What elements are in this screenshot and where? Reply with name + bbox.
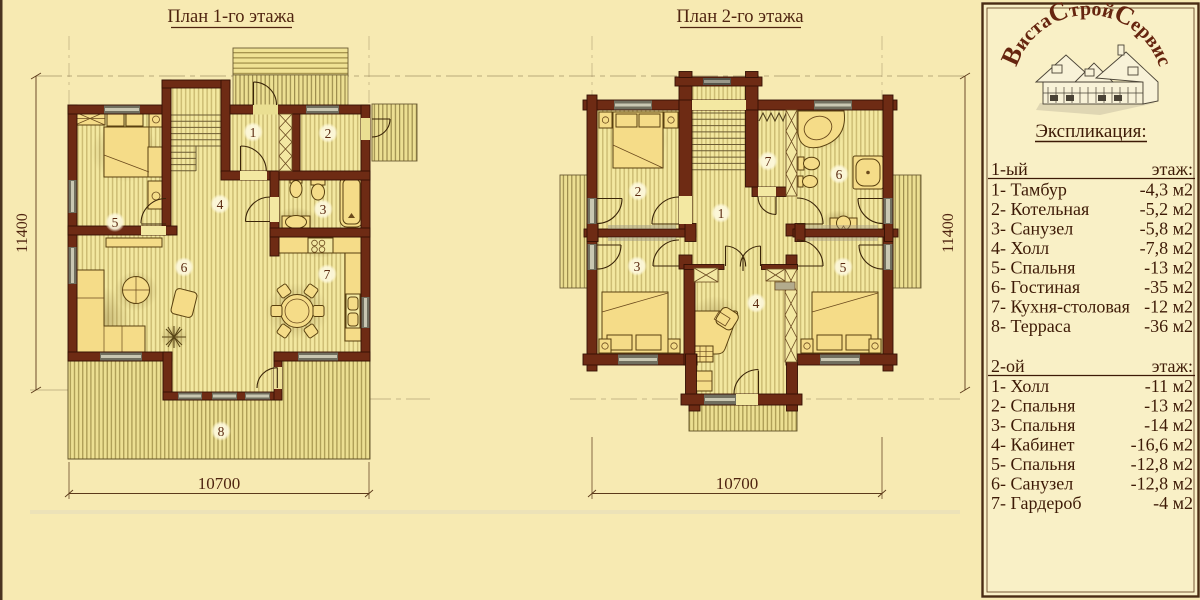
svg-text:5- Спальня: 5- Спальня — [991, 258, 1075, 278]
svg-text:2- Спальня: 2- Спальня — [991, 396, 1075, 416]
svg-text:6: 6 — [836, 167, 843, 182]
svg-text:-12 м2: -12 м2 — [1144, 297, 1193, 317]
svg-text:8- Терраса: 8- Терраса — [991, 316, 1071, 336]
svg-text:3: 3 — [634, 259, 641, 274]
svg-text:План 2-го этажа: План 2-го этажа — [676, 7, 803, 27]
svg-text:4: 4 — [753, 296, 760, 311]
svg-text:2: 2 — [325, 126, 332, 141]
svg-text:-12,8 м2: -12,8 м2 — [1131, 454, 1193, 474]
svg-text:1: 1 — [250, 125, 257, 140]
svg-text:7- Кухня-столовая: 7- Кухня-столовая — [991, 297, 1130, 317]
svg-text:3- Спальня: 3- Спальня — [991, 415, 1075, 435]
svg-text:-36 м2: -36 м2 — [1144, 316, 1193, 336]
svg-text:1: 1 — [718, 206, 725, 221]
svg-text:этаж:: этаж: — [1152, 356, 1193, 376]
svg-text:5- Спальня: 5- Спальня — [991, 454, 1075, 474]
svg-text:этаж:: этаж: — [1152, 159, 1193, 179]
svg-text:8: 8 — [218, 424, 225, 439]
svg-text:1- Холл: 1- Холл — [991, 376, 1049, 396]
svg-text:2-ой: 2-ой — [991, 356, 1025, 376]
svg-text:Экспликация:: Экспликация: — [1035, 121, 1146, 142]
svg-text:10700: 10700 — [198, 474, 241, 493]
svg-text:11400: 11400 — [940, 213, 957, 252]
svg-text:-12,8 м2: -12,8 м2 — [1131, 474, 1193, 494]
svg-text:-5,2 м2: -5,2 м2 — [1140, 199, 1193, 219]
svg-text:7: 7 — [324, 267, 331, 282]
svg-text:5: 5 — [840, 260, 847, 275]
svg-text:-16,6 м2: -16,6 м2 — [1131, 435, 1193, 455]
svg-text:4- Кабинет: 4- Кабинет — [991, 435, 1075, 455]
svg-text:3- Санузел: 3- Санузел — [991, 219, 1073, 239]
svg-text:-5,8 м2: -5,8 м2 — [1140, 219, 1193, 239]
svg-text:-11 м2: -11 м2 — [1145, 376, 1193, 396]
svg-text:4- Холл: 4- Холл — [991, 238, 1049, 258]
svg-text:-4 м2: -4 м2 — [1153, 493, 1193, 513]
svg-text:6: 6 — [181, 260, 188, 275]
svg-text:-35 м2: -35 м2 — [1144, 277, 1193, 297]
svg-text:-7,8 м2: -7,8 м2 — [1140, 238, 1193, 258]
svg-text:3: 3 — [320, 202, 327, 217]
svg-text:1- Тамбур: 1- Тамбур — [991, 180, 1067, 200]
svg-text:-13 м2: -13 м2 — [1144, 258, 1193, 278]
svg-text:11400: 11400 — [14, 213, 31, 252]
svg-text:5: 5 — [112, 215, 119, 230]
svg-text:2- Котельная: 2- Котельная — [991, 199, 1089, 219]
svg-text:План 1-го этажа: План 1-го этажа — [167, 7, 294, 27]
svg-text:-14 м2: -14 м2 — [1144, 415, 1193, 435]
svg-text:-4,3 м2: -4,3 м2 — [1140, 180, 1193, 200]
svg-text:10700: 10700 — [716, 474, 759, 493]
svg-text:7: 7 — [765, 154, 772, 169]
svg-text:1-ый: 1-ый — [991, 159, 1028, 179]
svg-text:2: 2 — [635, 184, 642, 199]
svg-text:7- Гардероб: 7- Гардероб — [991, 493, 1082, 513]
svg-text:4: 4 — [217, 197, 224, 212]
svg-text:-13 м2: -13 м2 — [1144, 396, 1193, 416]
svg-text:6- Гостиная: 6- Гостиная — [991, 277, 1080, 297]
svg-text:6- Санузел: 6- Санузел — [991, 474, 1073, 494]
